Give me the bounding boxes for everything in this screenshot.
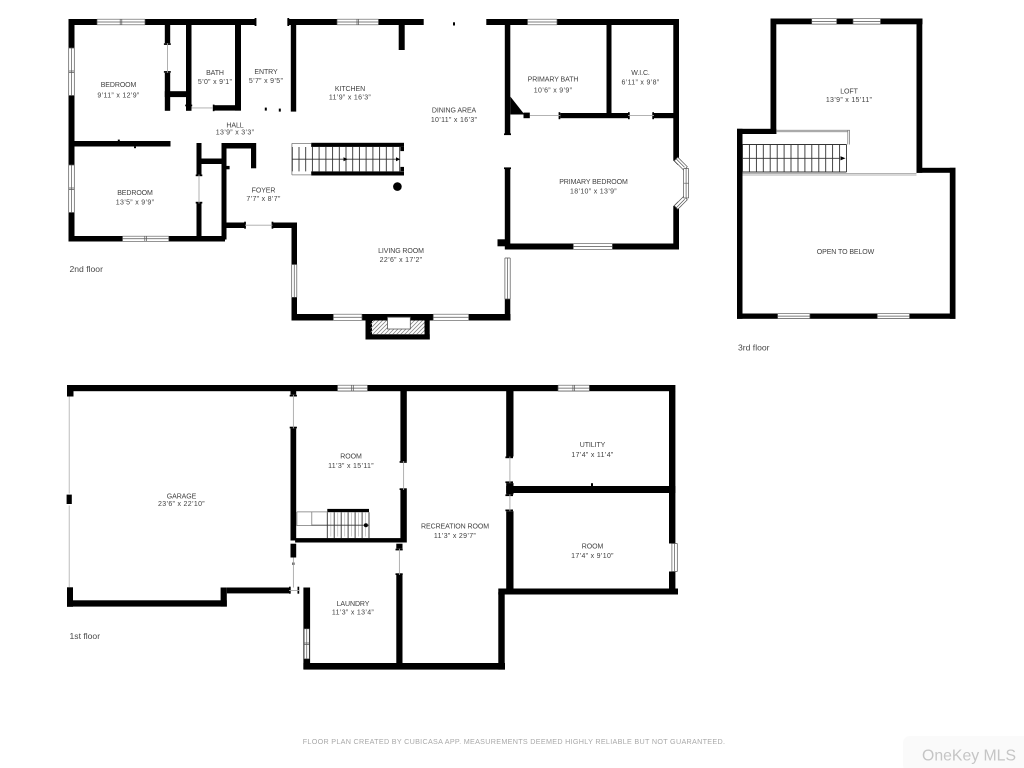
svg-text:13’9” x 15’11”: 13’9” x 15’11”: [826, 97, 873, 104]
svg-text:HALL: HALL: [226, 123, 243, 130]
svg-text:13’5” x 9’9”: 13’5” x 9’9”: [116, 200, 155, 207]
svg-text:1st floor: 1st floor: [70, 631, 101, 641]
svg-text:2nd floor: 2nd floor: [70, 264, 104, 274]
svg-text:GARAGE: GARAGE: [167, 494, 197, 501]
svg-text:11’3” x 15’11”: 11’3” x 15’11”: [328, 463, 374, 470]
svg-text:BEDROOM: BEDROOM: [117, 190, 153, 197]
svg-text:LOFT: LOFT: [840, 89, 858, 96]
svg-text:17’4” x 9’10”: 17’4” x 9’10”: [571, 553, 614, 560]
svg-text:9’11” x 12’9”: 9’11” x 12’9”: [97, 92, 140, 99]
svg-text:22’6” x 17’2”: 22’6” x 17’2”: [380, 257, 423, 264]
svg-text:DINING AREA: DINING AREA: [432, 108, 477, 115]
svg-text:LIVING ROOM: LIVING ROOM: [378, 248, 424, 255]
svg-text:23’6” x 22’10”: 23’6” x 22’10”: [158, 501, 205, 508]
svg-text:FOYER: FOYER: [252, 188, 276, 195]
svg-text:6’11” x 9’8”: 6’11” x 9’8”: [622, 79, 660, 86]
svg-text:ROOM: ROOM: [340, 454, 362, 461]
svg-text:ENTRY: ENTRY: [254, 69, 278, 76]
svg-text:ROOM: ROOM: [582, 544, 604, 551]
svg-text:5’0” x 9’1”: 5’0” x 9’1”: [198, 79, 233, 86]
svg-text:10’6” x 9’9”: 10’6” x 9’9”: [534, 88, 573, 95]
svg-text:LAUNDRY: LAUNDRY: [337, 601, 370, 608]
svg-text:BEDROOM: BEDROOM: [101, 82, 137, 89]
svg-text:W.I.C.: W.I.C.: [631, 70, 650, 77]
svg-text:11’3” x 13’4”: 11’3” x 13’4”: [332, 610, 375, 617]
svg-text:OneKey MLS: OneKey MLS: [922, 748, 1016, 765]
svg-text:3rd floor: 3rd floor: [738, 343, 770, 353]
svg-text:17’4” x 11’4”: 17’4” x 11’4”: [571, 452, 614, 459]
svg-text:13’9” x 3’3”: 13’9” x 3’3”: [216, 130, 255, 137]
svg-text:18’10” x 13’9”: 18’10” x 13’9”: [570, 188, 617, 195]
svg-text:KITCHEN: KITCHEN: [335, 86, 365, 93]
svg-text:PRIMARY BEDROOM: PRIMARY BEDROOM: [559, 179, 628, 186]
svg-text:BATH: BATH: [206, 70, 224, 77]
svg-text:7’7” x 8’7”: 7’7” x 8’7”: [246, 196, 281, 203]
svg-text:11’3” x 29’7”: 11’3” x 29’7”: [434, 533, 477, 540]
svg-text:PRIMARY BATH: PRIMARY BATH: [528, 77, 579, 84]
svg-text:5’7” x 9’5”: 5’7” x 9’5”: [249, 78, 284, 85]
svg-text:FLOOR PLAN CREATED BY CUBICASA: FLOOR PLAN CREATED BY CUBICASA APP. MEAS…: [303, 737, 726, 746]
svg-text:OPEN TO BELOW: OPEN TO BELOW: [817, 249, 875, 256]
svg-text:11’9” x 16’3”: 11’9” x 16’3”: [329, 95, 372, 102]
svg-text:RECREATION ROOM: RECREATION ROOM: [421, 524, 489, 531]
svg-text:10’11” x 16’3”: 10’11” x 16’3”: [431, 117, 478, 124]
svg-text:UTILITY: UTILITY: [580, 442, 606, 449]
